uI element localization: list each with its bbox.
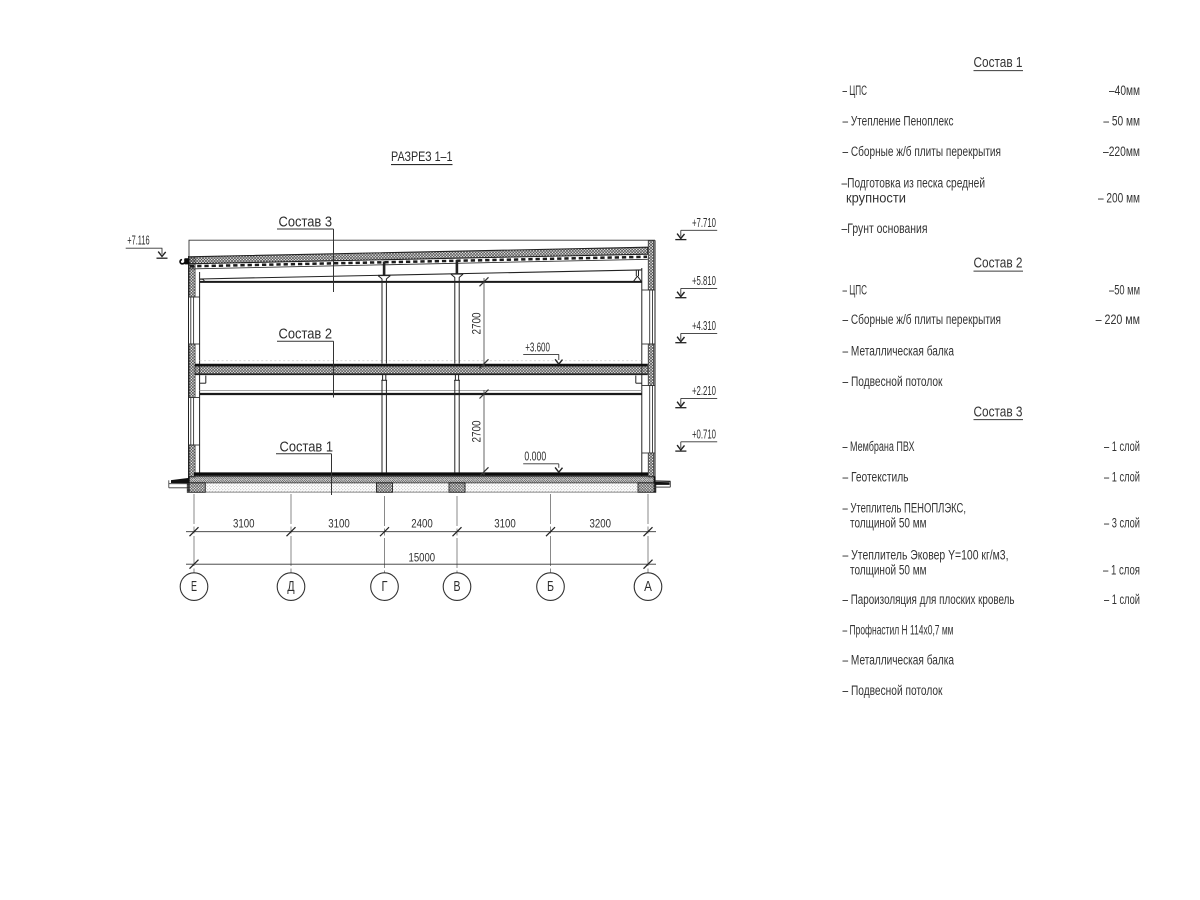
svg-text:3100: 3100 bbox=[328, 517, 350, 531]
svg-text:–220мм: –220мм bbox=[1103, 144, 1140, 159]
svg-text:– 200 мм: – 200 мм bbox=[1098, 190, 1140, 205]
svg-text:3200: 3200 bbox=[590, 517, 612, 531]
svg-text:– Подвесной потолок: – Подвесной потолок bbox=[843, 683, 943, 698]
svg-text:Б: Б bbox=[547, 579, 554, 595]
svg-text:Г: Г bbox=[382, 579, 388, 595]
svg-text:Состав 3: Состав 3 bbox=[974, 403, 1023, 420]
svg-text:+2.210: +2.210 bbox=[692, 384, 716, 398]
svg-text:– Пароизоляция для плоских кро: – Пароизоляция для плоских кровель bbox=[843, 592, 1015, 607]
svg-text:– ЦПС: – ЦПС bbox=[843, 282, 868, 297]
svg-text:–Подготовка из песка средней: –Подготовка из песка средней bbox=[842, 175, 986, 190]
svg-text:– Утеплитель ПЕНОПЛЭКС,: – Утеплитель ПЕНОПЛЭКС, bbox=[843, 500, 967, 515]
svg-text:+3.600: +3.600 bbox=[525, 341, 550, 355]
svg-text:+5.810: +5.810 bbox=[692, 274, 716, 288]
svg-text:–50 мм: –50 мм bbox=[1109, 282, 1140, 297]
svg-text:– Металлическая балка: – Металлическая балка bbox=[843, 343, 955, 358]
svg-text:Состав 1: Состав 1 bbox=[280, 439, 334, 455]
svg-text:– Мембрана ПВХ: – Мембрана ПВХ bbox=[843, 439, 915, 454]
svg-text:В: В bbox=[454, 579, 461, 595]
svg-text:+7.116: +7.116 bbox=[127, 234, 149, 248]
svg-text:– 1 слой: – 1 слой bbox=[1104, 469, 1140, 484]
svg-text:крупности: крупности bbox=[846, 190, 906, 205]
svg-text:– 1 слоя: – 1 слоя bbox=[1103, 562, 1140, 577]
svg-text:толщиной 50 мм: толщиной 50 мм bbox=[850, 515, 927, 530]
svg-text:– 220 мм: – 220 мм bbox=[1096, 312, 1140, 327]
svg-text:2400: 2400 bbox=[411, 517, 433, 531]
svg-text:Е: Е bbox=[191, 579, 197, 595]
svg-text:РАЗРЕЗ 1–1: РАЗРЕЗ 1–1 bbox=[391, 149, 453, 164]
svg-text:15000: 15000 bbox=[409, 550, 436, 564]
svg-text:– Утеплитель Эковер Y=100 кг/м: – Утеплитель Эковер Y=100 кг/м3, bbox=[843, 547, 1009, 562]
svg-text:+0.710: +0.710 bbox=[692, 428, 716, 442]
svg-text:Состав 1: Состав 1 bbox=[974, 54, 1023, 71]
svg-text:3100: 3100 bbox=[233, 517, 255, 531]
svg-text:–40мм: –40мм bbox=[1109, 83, 1140, 98]
svg-text:3100: 3100 bbox=[494, 517, 516, 531]
svg-text:– Геотекстиль: – Геотекстиль bbox=[843, 469, 909, 484]
svg-text:+4.310: +4.310 bbox=[692, 319, 716, 333]
svg-text:0.000: 0.000 bbox=[524, 449, 546, 463]
svg-text:Состав 2: Состав 2 bbox=[279, 326, 333, 342]
svg-text:2700: 2700 bbox=[470, 312, 484, 334]
svg-text:+7.710: +7.710 bbox=[692, 216, 716, 230]
svg-text:– ЦПС: – ЦПС bbox=[843, 83, 868, 98]
svg-text:– Сборные ж/б плиты перекрытия: – Сборные ж/б плиты перекрытия bbox=[843, 144, 1002, 159]
svg-text:– 50 мм: – 50 мм bbox=[1103, 113, 1140, 128]
svg-text:Состав 3: Состав 3 bbox=[279, 214, 333, 230]
svg-text:Состав 2: Состав 2 bbox=[974, 254, 1023, 271]
svg-text:– Сборные ж/б плиты перекрытия: – Сборные ж/б плиты перекрытия bbox=[843, 312, 1002, 327]
svg-text:– 3 слой: – 3 слой bbox=[1104, 515, 1140, 530]
svg-text:– Подвесной потолок: – Подвесной потолок bbox=[843, 374, 943, 389]
svg-text:– 1 слой: – 1 слой bbox=[1104, 439, 1140, 454]
svg-text:2700: 2700 bbox=[470, 420, 484, 442]
svg-text:толщиной 50 мм: толщиной 50 мм bbox=[850, 562, 927, 577]
svg-text:– Профнастил Н 114х0,7 мм: – Профнастил Н 114х0,7 мм bbox=[843, 622, 954, 637]
svg-text:– Утепление Пеноплекс: – Утепление Пеноплекс bbox=[843, 113, 954, 128]
svg-text:– 1 слой: – 1 слой bbox=[1104, 592, 1140, 607]
svg-text:– Металлическая балка: – Металлическая балка bbox=[843, 652, 955, 667]
svg-text:Д: Д bbox=[287, 579, 294, 595]
svg-text:–Грунт основания: –Грунт основания bbox=[842, 221, 928, 236]
svg-text:А: А bbox=[644, 579, 652, 595]
